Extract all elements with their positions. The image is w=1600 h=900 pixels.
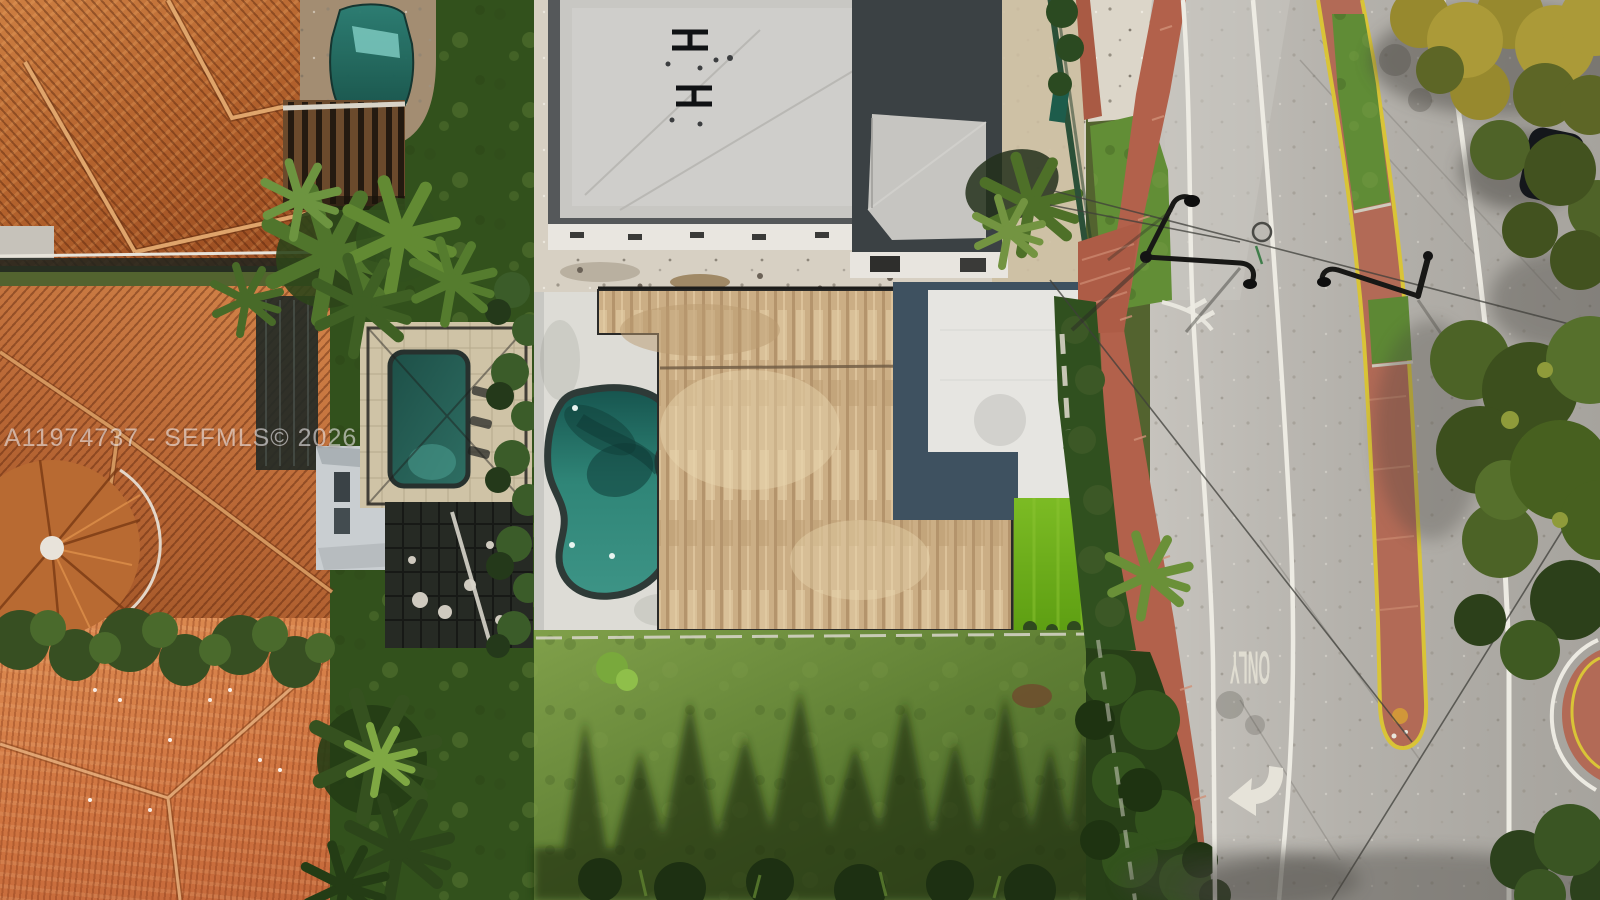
construction-building	[548, 0, 1008, 278]
aerial-photo: ONLY A11974737 - SEFMLS© 2026	[0, 0, 1600, 900]
hedge-band	[0, 608, 335, 688]
only-lane-marking: ONLY	[1224, 559, 1276, 776]
mls-watermark: A11974737 - SEFMLS© 2026	[4, 424, 364, 453]
lawn	[534, 630, 1106, 900]
